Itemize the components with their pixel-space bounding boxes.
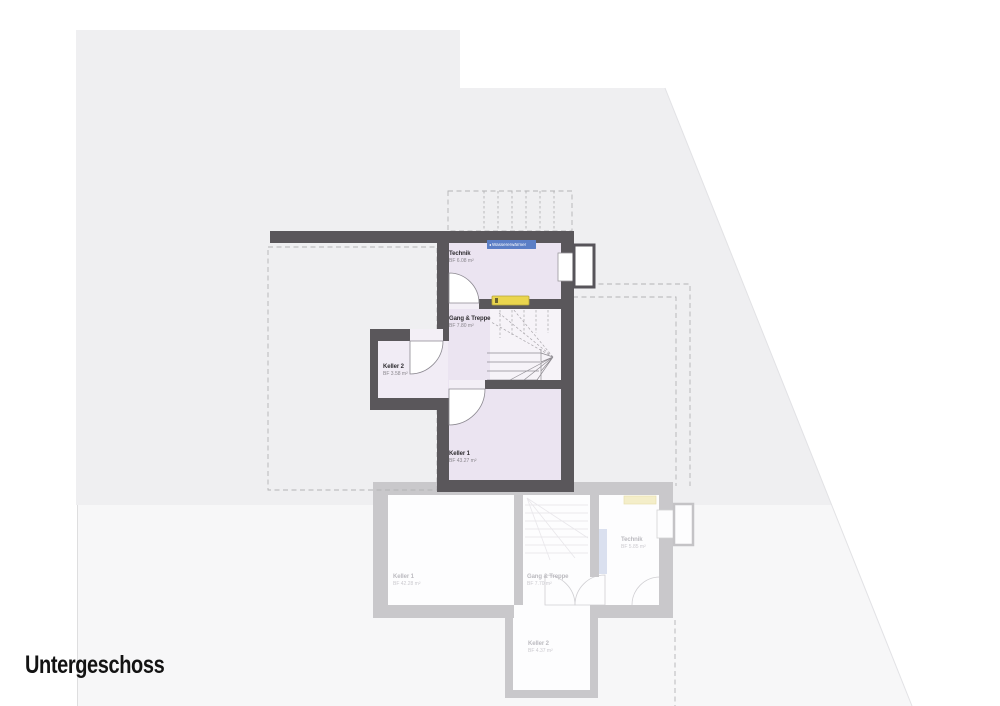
wall-keller2-left	[370, 329, 378, 410]
floor-plan-drawing	[0, 0, 1000, 706]
badge-marker-icon: ◂	[489, 240, 491, 249]
room-name: Gang & Treppe	[449, 316, 490, 322]
ghost-interior	[388, 495, 659, 605]
room-area: BF 3.58 m²	[383, 372, 408, 377]
wall-gang-keller1-divider	[485, 380, 561, 389]
ghost-heater-strip	[624, 496, 656, 504]
room-area: BF 6.08 m²	[449, 259, 474, 264]
room-name: Gang & Treppe	[527, 574, 568, 580]
room-name: Keller 2	[383, 364, 408, 370]
room-label-keller-2: Keller 2 BF 3.58 m²	[383, 364, 408, 377]
ghost-room-label-keller-1: Keller 1 BF 42.28 m²	[393, 574, 421, 587]
wall-keller1-left	[437, 398, 449, 492]
room-stair-fill	[490, 308, 561, 380]
annotation-badge: ◂ Wassererwärmer	[487, 240, 536, 249]
room-area: BF 42.28 m²	[393, 582, 421, 587]
room-name: Keller 2	[528, 641, 553, 647]
room-name: Technik	[449, 251, 474, 257]
floor-plan-sheet: ◂ Wassererwärmer Technik BF 6.08 m² Gang…	[0, 0, 1000, 706]
room-name: Keller 1	[449, 451, 477, 457]
room-area: BF 7.70 m²	[527, 582, 568, 587]
room-area: BF 4.37 m²	[528, 649, 553, 654]
room-area: BF 7.80 m²	[449, 324, 490, 329]
room-area: BF 43.27 m²	[449, 459, 477, 464]
heater-unit	[492, 296, 529, 305]
room-label-technik: Technik BF 6.08 m²	[449, 251, 474, 264]
room-name: Technik	[621, 537, 646, 543]
ghost-room-label-technik: Technik BF 5.85 m²	[621, 537, 646, 550]
badge-label: Wassererwärmer	[492, 240, 526, 249]
room-name: Keller 1	[393, 574, 421, 580]
ghost-blue-strip	[598, 529, 607, 574]
ghost-room-label-gang-treppe: Gang & Treppe BF 7.70 m²	[527, 574, 568, 587]
floor-title: Untergeschoss	[25, 651, 164, 680]
room-label-gang-treppe: Gang & Treppe BF 7.80 m²	[449, 316, 490, 329]
room-area: BF 5.85 m²	[621, 545, 646, 550]
wall-left-upper	[437, 243, 449, 341]
room-label-keller-1: Keller 1 BF 43.27 m²	[449, 451, 477, 464]
wall-bottom	[437, 480, 574, 492]
ghost-room-label-keller-2: Keller 2 BF 4.37 m²	[528, 641, 553, 654]
